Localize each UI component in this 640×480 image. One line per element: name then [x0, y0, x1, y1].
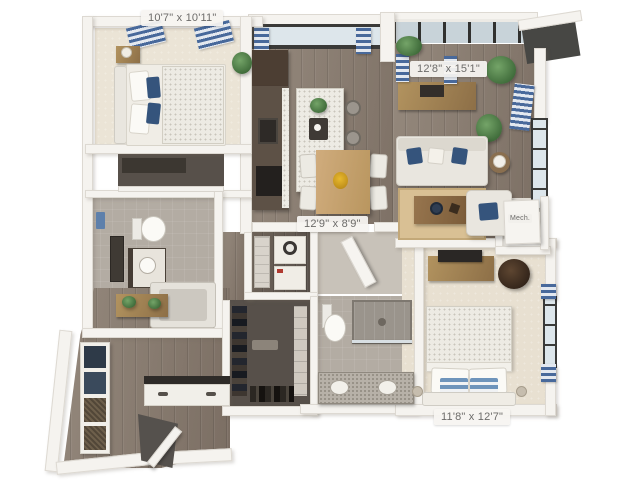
kitchen-curtain-right	[356, 28, 371, 54]
sofa-pillow-navy-left	[406, 147, 423, 165]
sofa-pillow-navy-right	[451, 147, 468, 165]
laundry-shelving	[254, 236, 270, 288]
wall-bath2-bedroom2	[414, 232, 424, 408]
bedroom2-window	[543, 296, 557, 368]
closet2-bench	[252, 340, 278, 350]
hall-credenza-top	[144, 376, 230, 384]
bed1-pillow-navy-top	[146, 76, 161, 98]
bath2-sink-left	[330, 380, 349, 395]
bedroom2-dimension-label: 11'8" x 12'7"	[434, 409, 510, 425]
floor-plan-canvas: 10'7" x 10'11" 12'8" x 15'1" 12'9" x 8'9…	[0, 0, 640, 480]
armchair-pillow	[478, 202, 498, 221]
bedroom1-plant	[232, 52, 252, 74]
bed2-finial-left	[412, 386, 423, 397]
dining-chair-right-1	[369, 153, 388, 178]
bed1-pillow-navy-bottom	[146, 102, 161, 124]
bed2-headboard	[422, 392, 516, 406]
dining-chair-right-2	[369, 185, 388, 210]
wall-living-right-upper	[534, 48, 546, 122]
entry-cubby-bin-2	[84, 372, 106, 394]
bath2-sink-right	[378, 380, 397, 395]
bedroom1-dimension-label: 10'7" x 10'11"	[141, 10, 223, 26]
wall-column-top	[380, 12, 395, 62]
toilet2-bowl	[324, 314, 346, 342]
entry-console-plant-right	[148, 298, 161, 309]
wall-left-outer	[82, 16, 93, 338]
sofa-pillow-white	[427, 147, 445, 165]
entry-cubby-basket-2	[84, 426, 106, 450]
wall-laundry-left	[244, 232, 252, 300]
bedroom1-lamp	[121, 47, 132, 58]
entry-cubby-bin-1	[84, 346, 106, 368]
wall-laundry-closet2	[244, 292, 318, 300]
living-room-dimension-label: 12'8" x 15'1"	[410, 61, 487, 77]
kitchen-sink	[258, 118, 278, 144]
sunroom-planter	[396, 36, 422, 56]
bed2-finial-right	[516, 386, 527, 397]
closet1-sliding-door	[118, 186, 224, 192]
shower-glass	[352, 340, 412, 343]
bedroom2-curtain-bottom	[541, 364, 556, 382]
shower-drain	[378, 318, 386, 326]
bed2-duvet	[426, 306, 512, 370]
mech-closet-label: Mech.	[508, 214, 532, 223]
entry-console-plant-left	[122, 296, 136, 308]
dining-centerpiece-flowers	[333, 172, 348, 189]
bar-stool-1	[345, 100, 361, 116]
bathroom1-sink	[139, 257, 156, 274]
wall-laundry-vestibule	[310, 232, 318, 294]
sunroom-plant	[486, 56, 516, 84]
wall-bedroom1-kitchen	[240, 16, 252, 234]
washer-door	[283, 241, 297, 255]
kitchen-island-plant	[310, 98, 327, 113]
hall-credenza	[144, 384, 230, 406]
bedroom2-round-chair	[498, 259, 530, 289]
coffee-table-decor	[430, 202, 443, 215]
kitchen-coffee-cup	[314, 124, 321, 131]
closet1-hanging-clothes	[122, 158, 186, 173]
closet2-shoe-row	[250, 386, 294, 402]
wall-bathroom1-bottom	[82, 328, 225, 338]
kitchen-backsplash	[282, 88, 289, 208]
sunroom-desk-object	[420, 85, 444, 97]
bathroom1-towel	[96, 212, 105, 229]
living-curtain-left	[396, 54, 409, 82]
bar-stool-2	[345, 130, 361, 146]
bedroom2-tv	[438, 250, 482, 262]
table-lamp	[493, 155, 506, 168]
credenza-pull-left	[158, 392, 168, 396]
toilet1-bowl	[141, 216, 166, 242]
kitchen-cooktop	[256, 166, 282, 196]
bed1-duvet	[162, 66, 224, 144]
wall-closet2-bath2	[310, 296, 318, 414]
kitchen-tall-cabinet	[252, 50, 288, 86]
credenza-pull-right	[206, 392, 216, 396]
dining-dimension-label: 12'9" x 8'9"	[297, 216, 368, 232]
bedroom2-curtain-top	[541, 284, 556, 299]
closet2-hanging-clothes	[232, 306, 247, 396]
entry-cubby-basket-1	[84, 398, 106, 422]
dryer-control	[277, 269, 283, 273]
closet2-shelves	[294, 306, 307, 396]
wall-mech-right	[540, 196, 549, 250]
bathroom1-mirror	[110, 236, 124, 282]
